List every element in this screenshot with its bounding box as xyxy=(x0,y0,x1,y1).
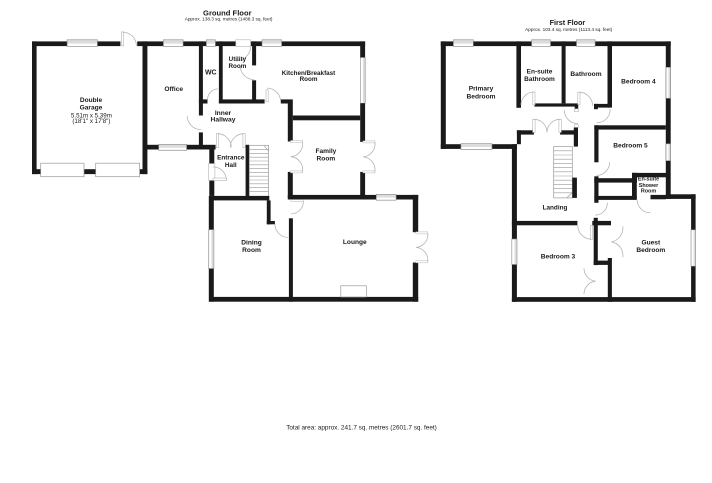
svg-text:Hallway: Hallway xyxy=(211,117,236,124)
svg-text:Dining: Dining xyxy=(241,239,262,246)
svg-text:(18'1" x 17'8"): (18'1" x 17'8") xyxy=(72,118,110,125)
svg-text:Lounge: Lounge xyxy=(343,239,367,246)
svg-text:Office: Office xyxy=(164,86,183,93)
svg-text:En-suite: En-suite xyxy=(527,69,553,76)
svg-text:Approx. 138.3 sq. metres (1488: Approx. 138.3 sq. metres (1488.3 sq. fee… xyxy=(185,17,273,22)
svg-text:Room: Room xyxy=(641,189,656,195)
svg-text:Room: Room xyxy=(242,247,261,254)
svg-text:Total area: approx. 241.7 sq.: Total area: approx. 241.7 sq. metres (26… xyxy=(286,425,437,432)
svg-text:Entrance: Entrance xyxy=(217,155,245,162)
svg-text:Guest: Guest xyxy=(641,240,660,247)
svg-text:Approx. 103.4 sq. metres (1113: Approx. 103.4 sq. metres (1113.4 sq. fee… xyxy=(525,27,613,32)
svg-text:Bedroom 5: Bedroom 5 xyxy=(613,143,648,150)
svg-text:Room: Room xyxy=(300,76,318,83)
svg-text:First Floor: First Floor xyxy=(550,18,586,27)
svg-text:Bathroom: Bathroom xyxy=(570,71,601,78)
svg-text:Double: Double xyxy=(80,97,103,104)
svg-text:Bedroom: Bedroom xyxy=(467,93,496,100)
svg-text:Family: Family xyxy=(315,148,336,155)
svg-text:Bathroom: Bathroom xyxy=(524,76,555,83)
svg-text:Room: Room xyxy=(317,156,336,163)
svg-text:WC: WC xyxy=(205,69,217,76)
svg-text:Landing: Landing xyxy=(543,204,568,211)
svg-text:Garage: Garage xyxy=(80,105,103,112)
svg-text:Bedroom 3: Bedroom 3 xyxy=(541,254,576,261)
svg-text:Hall: Hall xyxy=(225,162,237,169)
svg-text:Bedroom: Bedroom xyxy=(636,247,665,254)
svg-text:Utility: Utility xyxy=(229,56,247,63)
svg-text:Primary: Primary xyxy=(469,86,494,93)
svg-text:En-suite: En-suite xyxy=(638,177,659,183)
svg-text:Bedroom 4: Bedroom 4 xyxy=(621,78,656,85)
svg-text:Room: Room xyxy=(228,63,246,70)
